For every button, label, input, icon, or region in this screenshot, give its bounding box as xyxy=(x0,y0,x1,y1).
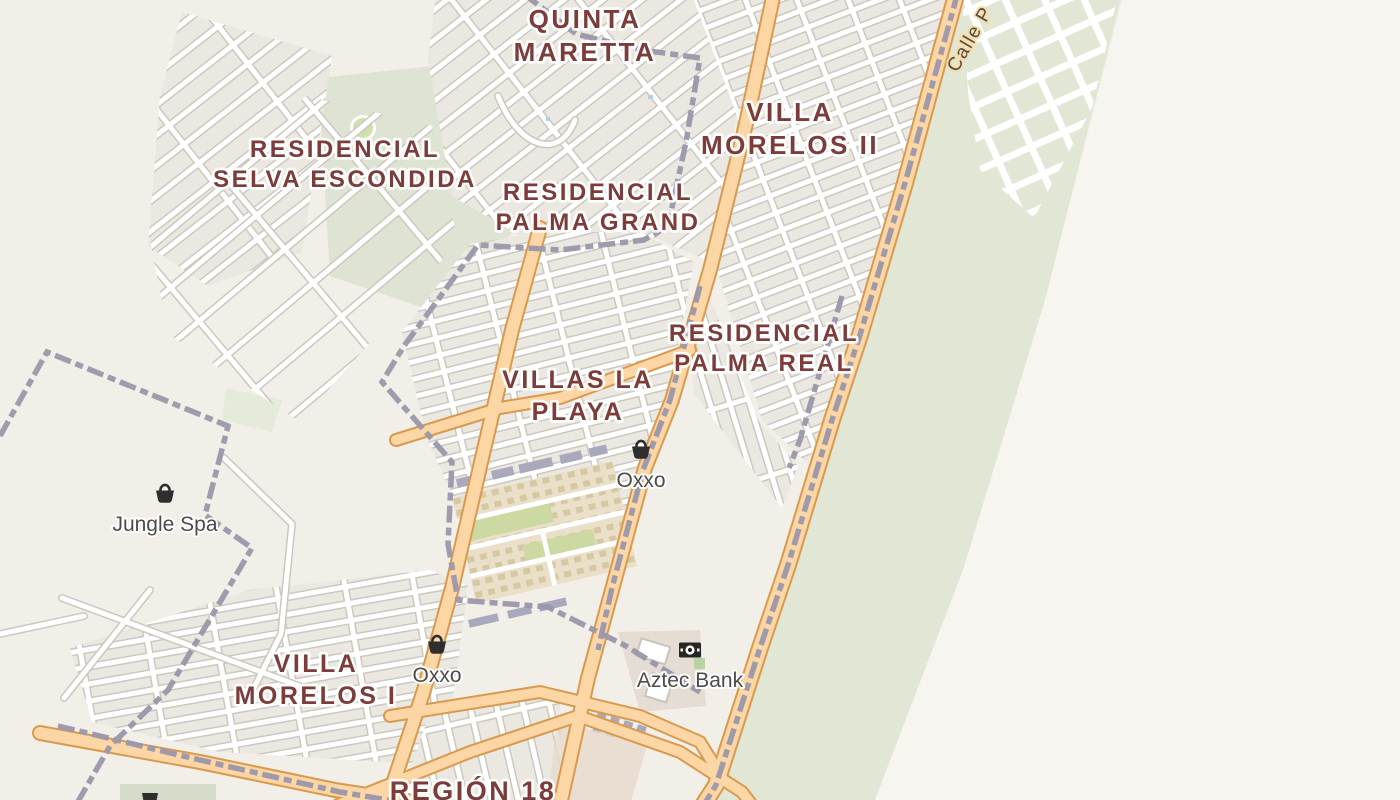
poi-label-oxxo[interactable]: Oxxo xyxy=(412,664,461,687)
pool-1 xyxy=(648,95,653,99)
partial-poi-icon[interactable] xyxy=(142,793,158,800)
poi-label-oxxo[interactable]: Oxxo xyxy=(616,469,665,492)
poi-label-aztec-bank[interactable]: Aztec Bank xyxy=(637,669,744,692)
aztec-green-square xyxy=(694,658,705,669)
green-bottom-left xyxy=(120,784,216,800)
pool-2 xyxy=(546,117,550,121)
map-svg: QUINTAMARETTAVILLAMORELOS IIRESIDENCIALS… xyxy=(0,0,1400,800)
district-label-regi-n-18: REGIÓN 18 xyxy=(390,775,557,800)
poi-label-jungle-spa[interactable]: Jungle Spa xyxy=(112,513,217,536)
map-canvas[interactable]: QUINTAMARETTAVILLAMORELOS IIRESIDENCIALS… xyxy=(0,0,1400,800)
poi-marker-aztec-bank-banknote-icon[interactable] xyxy=(679,643,701,658)
